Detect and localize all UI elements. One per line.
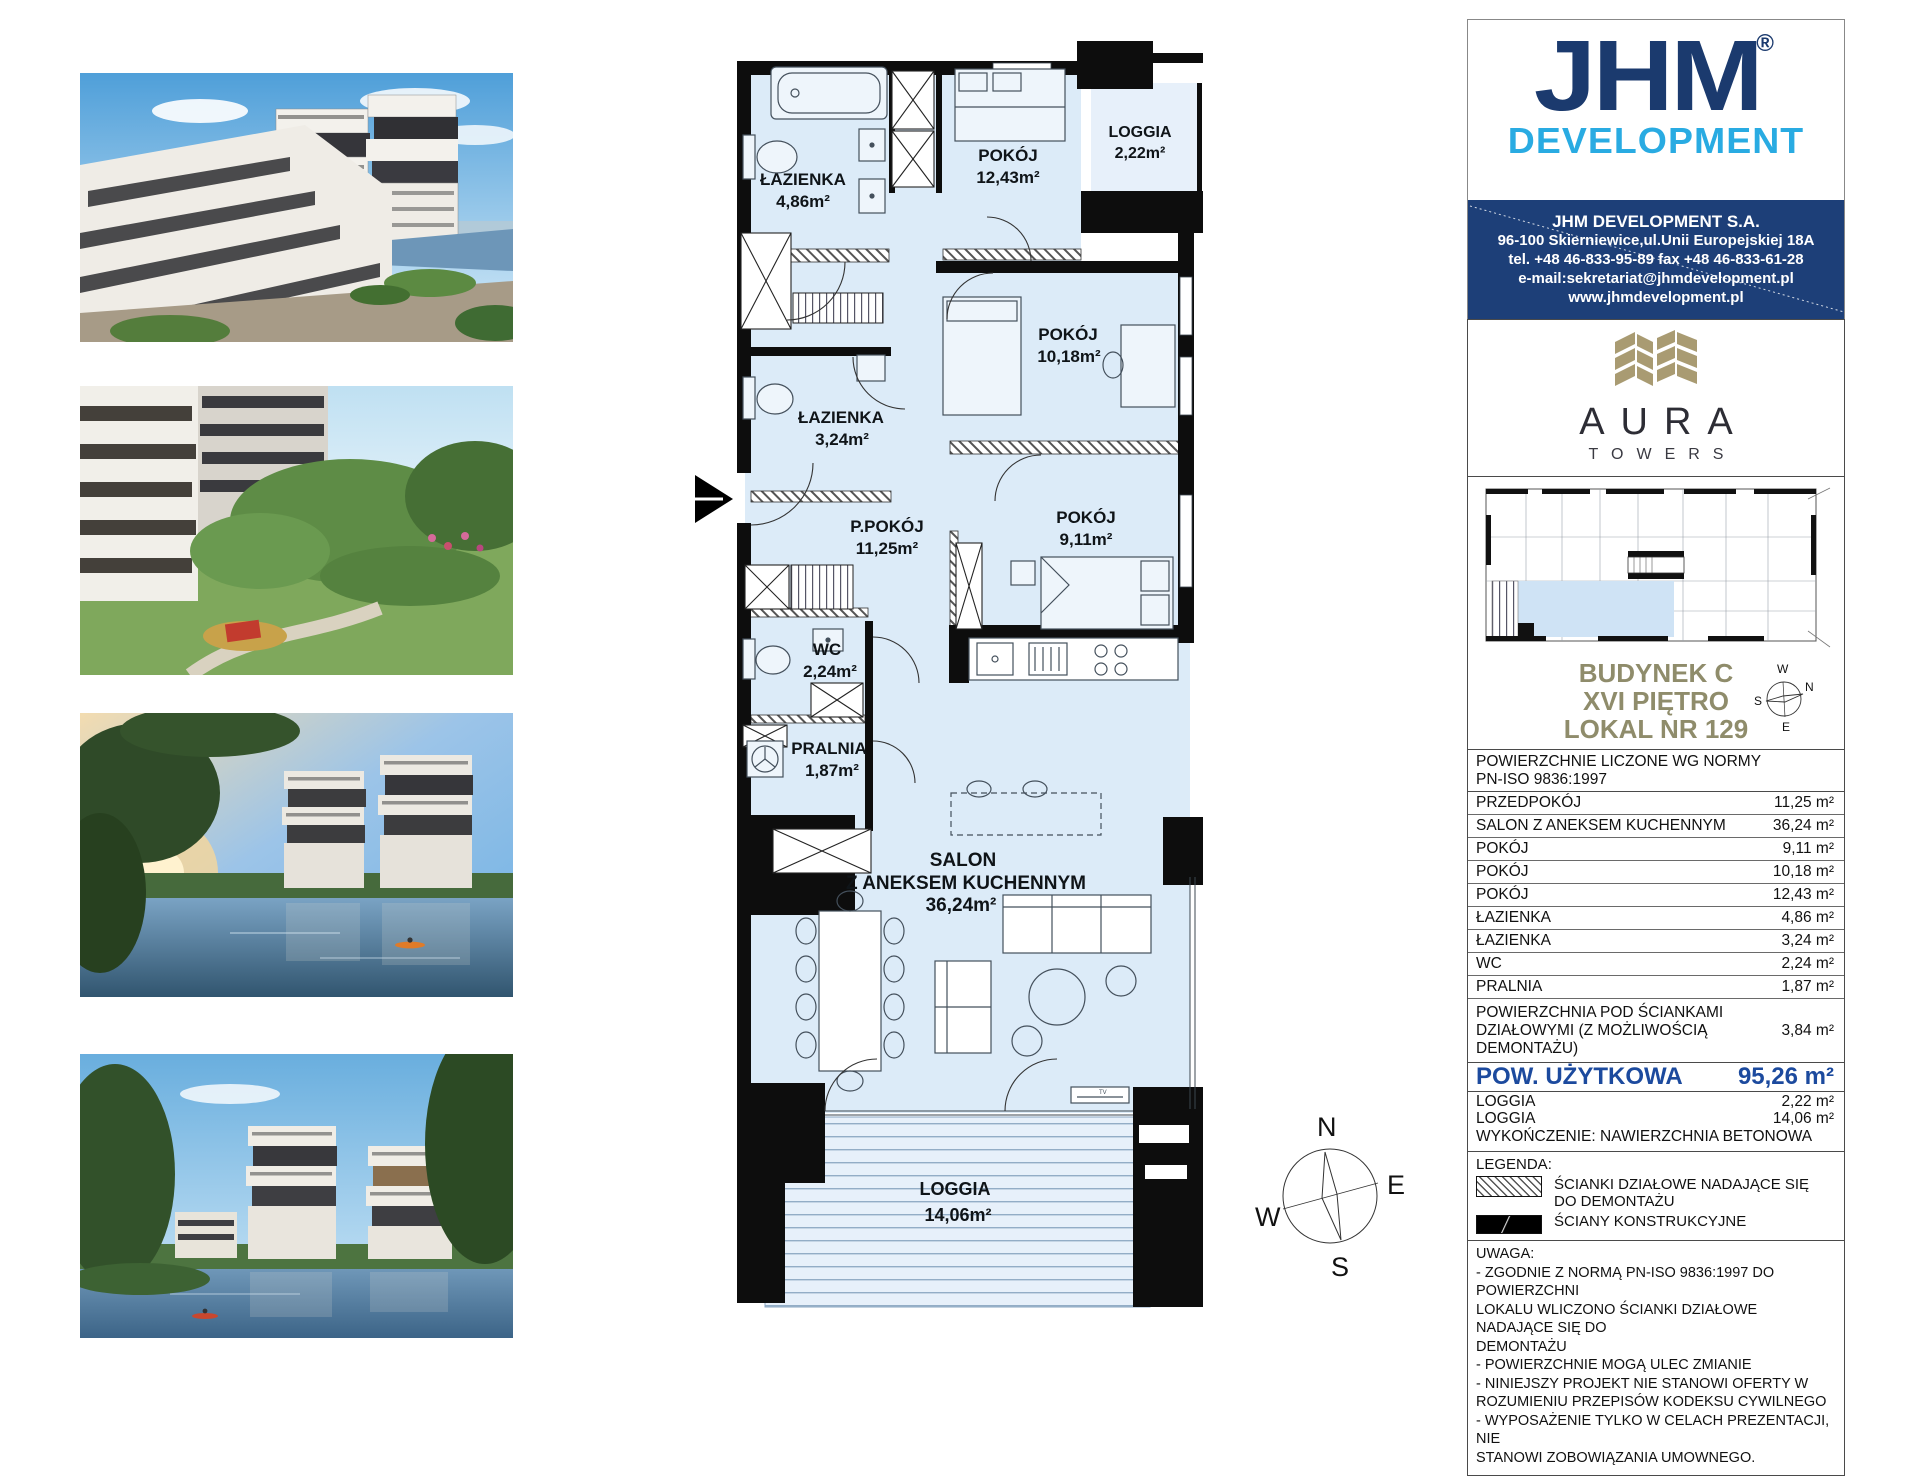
notes: UWAGA: - ZGODNIE Z NORMĄ PN-ISO 9836:199… bbox=[1467, 1240, 1845, 1476]
compass-n: N bbox=[1317, 1112, 1337, 1142]
room-label: ŁAZIENKA bbox=[760, 170, 846, 189]
table-row: POWIERZCHNIA POD ŚCIANKAMI DZIAŁOWYMI (Z… bbox=[1468, 999, 1844, 1062]
unit-location-box: BUDYNEK C XVI PIĘTRO LOKAL NR 129 W N S … bbox=[1467, 476, 1845, 750]
info-panel: JHM® DEVELOPMENT JHM DEVELOPMENT S.A. 96… bbox=[1467, 20, 1845, 1476]
room-label: WC bbox=[813, 640, 841, 659]
room-area: 11,25m² bbox=[856, 539, 919, 558]
room-label: LOGGIA bbox=[920, 1179, 991, 1199]
tv-label: TV bbox=[1099, 1090, 1107, 1096]
table-row: ŁAZIENKA3,24 m² bbox=[1468, 930, 1844, 953]
render-photo-3 bbox=[80, 713, 513, 997]
finish-note: WYKOŃCZENIE: NAWIERZCHNIA BETONOWA bbox=[1468, 1127, 1844, 1149]
mini-compass-e: E bbox=[1782, 720, 1790, 734]
compass-rose: N E W S bbox=[1245, 1106, 1415, 1296]
room-area: 36,24m² bbox=[926, 895, 997, 916]
render-photo-4 bbox=[80, 1054, 513, 1338]
room-area: 10,18m² bbox=[1037, 347, 1101, 366]
loggia-box: LOGGIA2,22 m² LOGGIA14,06 m² WYKOŃCZENIE… bbox=[1467, 1091, 1845, 1152]
registered-mark: ® bbox=[1756, 30, 1774, 57]
room-area: 9,11m² bbox=[1060, 530, 1113, 549]
table-row: WC2,24 m² bbox=[1468, 953, 1844, 976]
area-table-header: POWIERZCHNIE LICZONE WG NORMY PN-ISO 983… bbox=[1468, 750, 1844, 792]
aura-sub: TOWERS bbox=[1468, 446, 1844, 464]
room-label: PRALNIA bbox=[791, 739, 867, 758]
table-row: ŁAZIENKA4,86 m² bbox=[1468, 907, 1844, 930]
notes-title: UWAGA: bbox=[1476, 1245, 1836, 1264]
render-photo-4-art bbox=[80, 1054, 513, 1338]
room-area: 14,06m² bbox=[924, 1205, 991, 1225]
structural-wall-swatch bbox=[1476, 1215, 1542, 1234]
company-website: www.jhmdevelopment.pl bbox=[1468, 288, 1844, 307]
partition-wall-swatch bbox=[1476, 1176, 1542, 1197]
company-phone: tel. +48 46-833-95-89 fax +48 46-833-61-… bbox=[1468, 250, 1844, 269]
jhm-development-text: DEVELOPMENT bbox=[1460, 120, 1851, 162]
legend: LEGENDA: ŚCIANKI DZIAŁOWE NADAJĄCE SIĘ D… bbox=[1467, 1151, 1845, 1241]
mini-compass: W N S E bbox=[1746, 659, 1822, 735]
compass-e: E bbox=[1387, 1170, 1405, 1200]
floor-plan-drawing: TV ŁAZIENKA 4,86m² POKÓJ 12,43m² LOGGIA … bbox=[693, 25, 1215, 1315]
total-label: POW. UŻYTKOWA bbox=[1476, 1063, 1683, 1091]
loggia-row: LOGGIA2,22 m² bbox=[1468, 1094, 1844, 1111]
render-photo-1-art bbox=[80, 73, 513, 342]
company-name: JHM DEVELOPMENT S.A. bbox=[1468, 212, 1844, 231]
company-contact: JHM DEVELOPMENT S.A. 96-100 Skierniewice… bbox=[1468, 200, 1844, 319]
room-label: POKÓJ bbox=[1038, 325, 1098, 344]
company-address: 96-100 Skierniewice,ul.Unii Europejskiej… bbox=[1468, 231, 1844, 250]
notes-body: - ZGODNIE Z NORMĄ PN-ISO 9836:1997 DO PO… bbox=[1476, 1264, 1836, 1468]
render-photo-3-art bbox=[80, 713, 513, 997]
aura-towers-logo: AURA TOWERS bbox=[1467, 319, 1845, 477]
mini-compass-w: W bbox=[1777, 662, 1789, 676]
mini-compass-s: S bbox=[1754, 694, 1762, 708]
floor-overview-plan bbox=[1478, 485, 1834, 657]
legend-title: LEGENDA: bbox=[1476, 1156, 1836, 1173]
room-label: LOGGIA bbox=[1108, 124, 1172, 141]
mini-compass-n: N bbox=[1805, 680, 1814, 694]
table-row: POKÓJ12,43 m² bbox=[1468, 884, 1844, 907]
company-email: e-mail:sekretariat@jhmdevelopment.pl bbox=[1468, 269, 1844, 288]
room-area: 12,43m² bbox=[976, 168, 1040, 187]
table-row: PRZEDPOKÓJ11,25 m² bbox=[1468, 792, 1844, 815]
render-photo-2-art bbox=[80, 386, 513, 675]
room-area: 2,24m² bbox=[803, 662, 857, 681]
table-row: SALON Z ANEKSEM KUCHENNYM36,24 m² bbox=[1468, 815, 1844, 838]
legend-item-structural: ŚCIANY KONSTRUKCYJNE bbox=[1476, 1213, 1836, 1234]
room-label: SALON bbox=[930, 850, 997, 871]
table-row: POKÓJ9,11 m² bbox=[1468, 838, 1844, 861]
compass-w: W bbox=[1255, 1202, 1281, 1232]
room-area: 1,87m² bbox=[805, 761, 859, 780]
compass-s: S bbox=[1331, 1252, 1349, 1282]
total-value: 95,26 m² bbox=[1738, 1063, 1834, 1091]
room-label: P.POKÓJ bbox=[850, 517, 923, 536]
table-row: PRALNIA1,87 m² bbox=[1468, 976, 1844, 999]
usable-area-total: POW. UŻYTKOWA95,26 m² bbox=[1467, 1062, 1845, 1092]
room-area: 4,86m² bbox=[776, 192, 830, 211]
aura-towers-icon bbox=[1613, 330, 1699, 394]
legend-item-partition: ŚCIANKI DZIAŁOWE NADAJĄCE SIĘ DO DEMONTA… bbox=[1476, 1176, 1836, 1210]
loggia-row: LOGGIA14,06 m² bbox=[1468, 1111, 1844, 1128]
room-label: ŁAZIENKA bbox=[798, 408, 884, 427]
room-area: 2,22m² bbox=[1115, 145, 1166, 162]
jhm-logo-text: JHM bbox=[1534, 26, 1760, 126]
area-table: POWIERZCHNIE LICZONE WG NORMY PN-ISO 983… bbox=[1467, 749, 1845, 1063]
floor-plan: TV ŁAZIENKA 4,86m² POKÓJ 12,43m² LOGGIA … bbox=[693, 25, 1215, 1315]
company-header: JHM® DEVELOPMENT JHM DEVELOPMENT S.A. 96… bbox=[1467, 19, 1845, 320]
room-label-line2: Z ANEKSEM KUCHENNYM bbox=[846, 873, 1086, 894]
aura-name: AURA bbox=[1468, 401, 1844, 444]
room-label: POKÓJ bbox=[978, 146, 1038, 165]
render-photo-2 bbox=[80, 386, 513, 675]
table-row: POKÓJ10,18 m² bbox=[1468, 861, 1844, 884]
room-label: POKÓJ bbox=[1056, 508, 1116, 527]
room-area: 3,24m² bbox=[815, 430, 869, 449]
jhm-logo: JHM® DEVELOPMENT bbox=[1468, 20, 1844, 200]
render-photo-1 bbox=[80, 73, 513, 342]
